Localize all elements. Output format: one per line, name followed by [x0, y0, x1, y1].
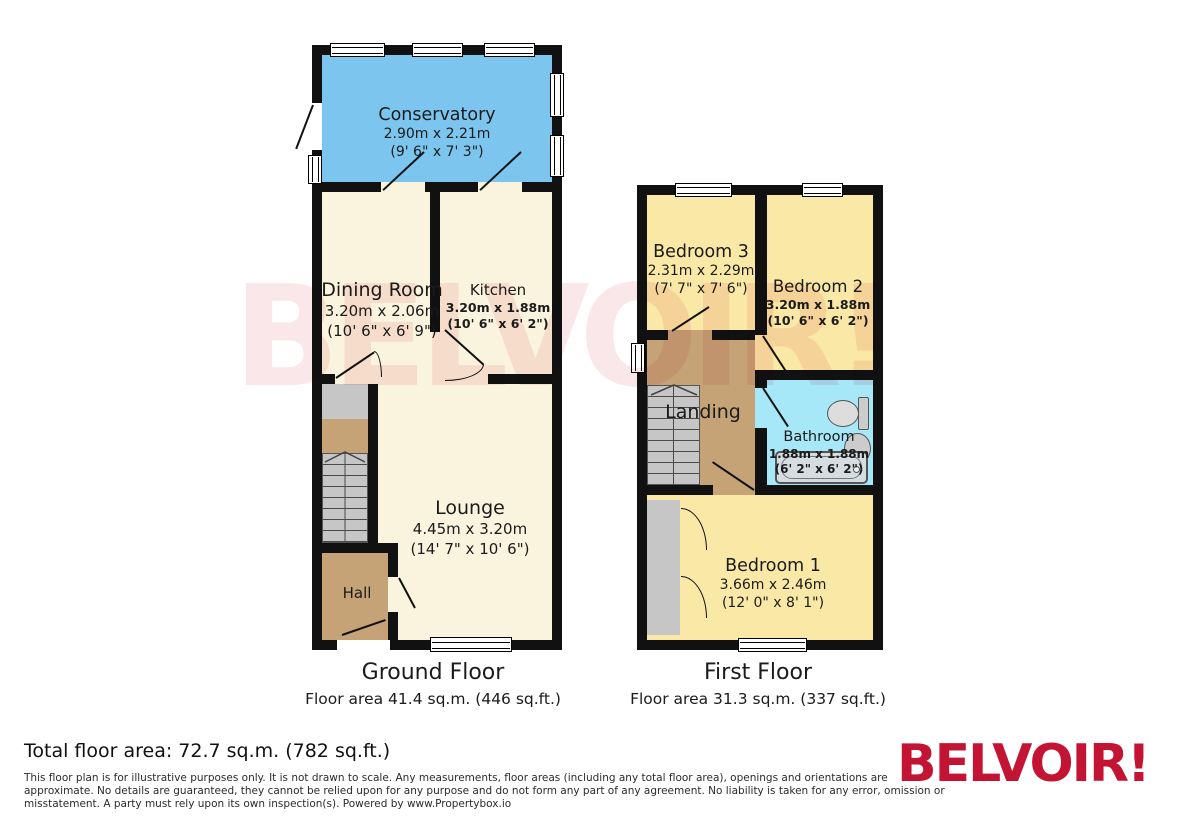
landing-label: Landing: [665, 400, 741, 424]
floorplan-page: BELVOIR!: [0, 0, 1181, 826]
lounge-label: Lounge 4.45m x 3.20m (14' 7" x 10' 6"): [411, 496, 530, 559]
window: [484, 43, 535, 57]
stairs-up-chevron: [323, 450, 367, 464]
stair-landing-patch: [322, 419, 368, 453]
window: [430, 637, 512, 652]
conservatory-door-gap: [312, 103, 322, 150]
total-floor-area: Total floor area: 72.7 sq.m. (782 sq.ft.…: [24, 740, 390, 762]
window: [550, 135, 564, 177]
toilet-bowl-icon: [827, 400, 859, 427]
divider-wall-segment: [755, 428, 767, 485]
window: [412, 43, 463, 57]
disclaimer-line: misstatement. A party must rely upon its…: [24, 798, 511, 811]
dining-room-label: Dining Room 3.20m x 2.06m (10' 6" x 6' 9…: [321, 278, 442, 341]
bedroom1-label: Bedroom 1 3.66m x 2.46m (12' 0" x 8' 1"): [720, 555, 827, 613]
dining-bottom-wall-stub: [322, 374, 335, 384]
hall-top-wall: [322, 543, 398, 553]
window: [550, 73, 564, 117]
bedroom1-top-wall: [647, 485, 713, 495]
bedroom2-bottom-wall: [765, 370, 873, 380]
bedroom3-label: Bedroom 3 2.31m x 2.29m (7' 7" x 7' 6"): [648, 241, 755, 299]
window: [738, 638, 807, 652]
bathroom-label: Bathroom 1.88m x 1.88m (6' 2" x 6' 2"): [769, 428, 869, 477]
bedroom1-closet: [647, 500, 680, 635]
hall-side-wall-upper: [388, 553, 398, 577]
ground-floor-stairs: [322, 453, 368, 543]
bedroom1-top-wall: [755, 485, 873, 495]
belvoir-logo: BELVOIR!: [897, 734, 1149, 794]
hall-label: Hall: [343, 584, 372, 603]
kitchen-bottom-wall: [488, 374, 552, 384]
bedroom3-door-gap: [668, 330, 712, 340]
bedroom2-label: Bedroom 2 3.20m x 1.88m (10' 6" x 6' 2"): [766, 276, 871, 329]
stairs-up-chevron: [649, 383, 699, 397]
stairs-side-wall: [368, 384, 378, 543]
window: [802, 183, 843, 197]
toilet-tank-icon: [858, 397, 869, 430]
ground-floor-caption: Ground Floor Floor area 41.4 sq.m. (446 …: [305, 660, 561, 708]
window: [675, 183, 732, 197]
front-door-gap: [337, 640, 390, 653]
first-floor-caption: First Floor Floor area 31.3 sq.m. (337 s…: [630, 660, 886, 708]
understairs-cupboard: [322, 384, 368, 419]
kitchen-label: Kitchen 3.20m x 1.88m (10' 6" x 6' 2"): [446, 281, 551, 332]
window: [330, 43, 385, 57]
window: [308, 155, 322, 184]
hall-side-wall-lower: [388, 612, 398, 640]
bedroom3-bottom-wall: [647, 330, 668, 340]
conservatory-label: Conservatory 2.90m x 2.21m (9' 6" x 7' 3…: [378, 104, 495, 162]
bedroom3-bottom-wall: [712, 330, 755, 340]
window: [631, 343, 645, 373]
disclaimer-line: This floor plan is for illustrative purp…: [24, 772, 888, 785]
disclaimer-line: approximate. No details are guaranteed, …: [24, 785, 945, 798]
